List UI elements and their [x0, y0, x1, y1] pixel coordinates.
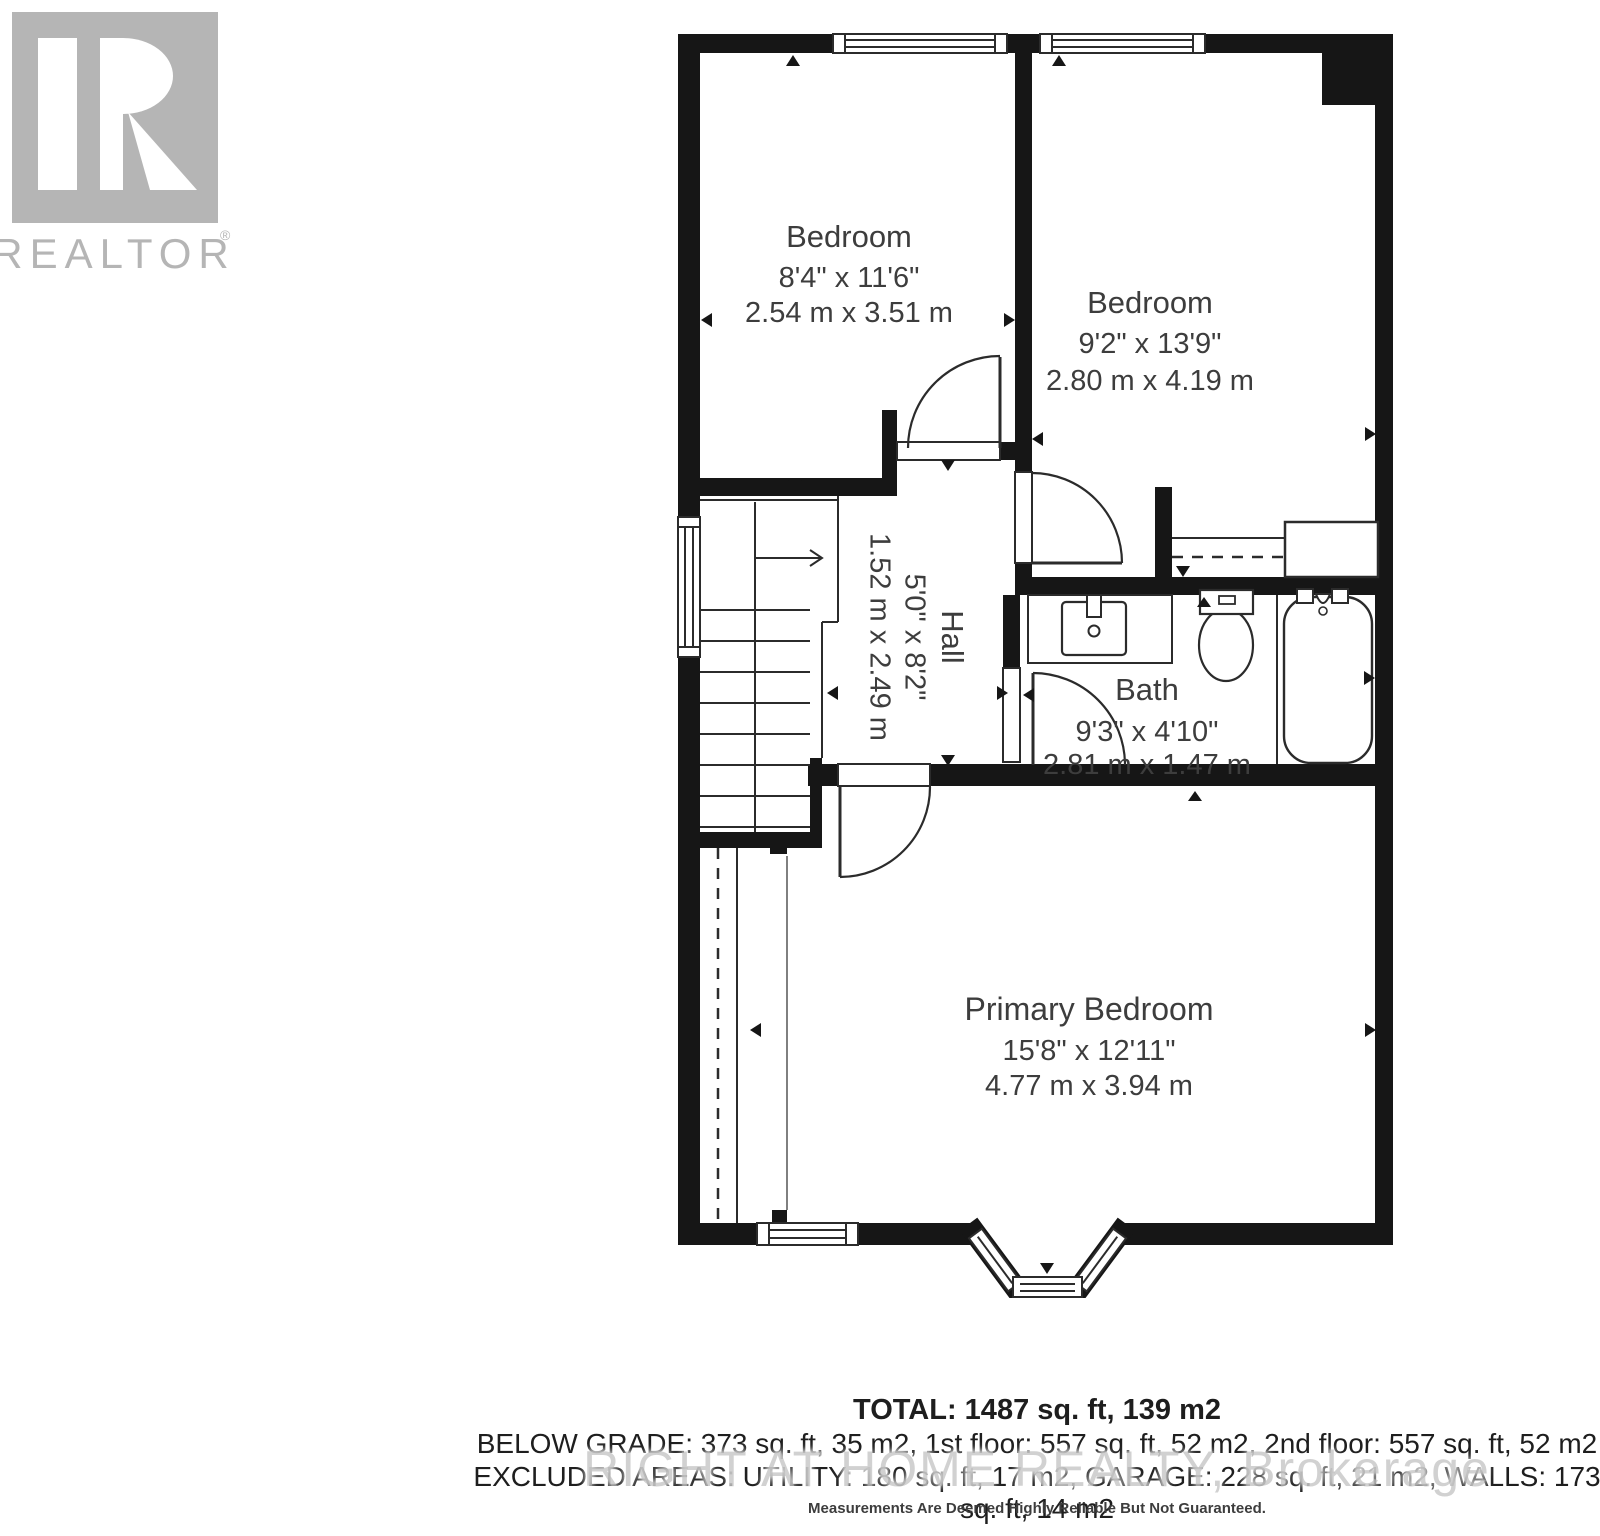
stairs-up-arrow-icon: [755, 550, 822, 610]
room-dim-imperial: 9'2" x 13'9": [1079, 328, 1222, 360]
room-dim-metric: 2.54 m x 3.51 m: [745, 297, 953, 329]
room-name: Bedroom: [1087, 285, 1213, 320]
bedroom2-label: Bedroom 9'2" x 13'9" 2.80 m x 4.19 m: [1046, 285, 1254, 397]
room-name: Hall: [935, 610, 970, 663]
sink-vanity-icon: [1028, 595, 1172, 663]
room-dim-imperial: 5'0" x 8'2": [898, 574, 930, 701]
room-name: Bedroom: [786, 219, 912, 254]
stairwell-window: [678, 517, 700, 657]
total-area-text: TOTAL: 1487 sq. ft, 139 m2: [472, 1394, 1600, 1427]
bay-window: [969, 1229, 1126, 1297]
room-name: Bath: [1115, 672, 1179, 707]
bathtub-icon: [1284, 589, 1372, 763]
ceiling-break-lines: [718, 848, 787, 1223]
brokerage-watermark: RIGHT AT HOME REALTY, Brokerage: [472, 1440, 1600, 1498]
bedroom2-closet: [1172, 522, 1378, 577]
primary-bedroom-label: Primary Bedroom 15'8" x 12'11" 4.77 m x …: [965, 991, 1214, 1102]
room-dim-metric: 1.52 m x 2.49 m: [863, 533, 895, 741]
floorplan-page: REALTOR ®: [0, 0, 1600, 1536]
hall-label: Hall 5'0" x 8'2" 1.52 m x 2.49 m: [863, 533, 969, 741]
bedroom1-label: Bedroom 8'4" x 11'6" 2.54 m x 3.51 m: [745, 219, 953, 329]
room-name: Primary Bedroom: [965, 991, 1214, 1027]
primary-bedroom-window: [757, 1223, 858, 1245]
room-dim-metric: 2.81 m x 1.47 m: [1043, 749, 1251, 781]
bedroom2-door: [1015, 472, 1122, 563]
bedroom1-door: [897, 356, 1000, 460]
floorplan-drawing: REALTOR ®: [0, 0, 1600, 1536]
bedroom2-window: [1040, 34, 1205, 53]
room-dim-imperial: 9'3" x 4'10": [1076, 716, 1219, 748]
bath-label: Bath 9'3" x 4'10" 2.81 m x 1.47 m: [1043, 672, 1251, 781]
room-dim-imperial: 8'4" x 11'6": [779, 262, 920, 294]
primary-bedroom-door: [838, 764, 930, 877]
disclaimer-text: Measurements Are Deemed Highly Reliable …: [472, 1500, 1600, 1517]
room-dim-metric: 4.77 m x 3.94 m: [985, 1070, 1193, 1102]
bedroom1-window: [833, 34, 1007, 53]
registered-trademark: ®: [220, 227, 231, 243]
room-dim-imperial: 15'8" x 12'11": [1002, 1035, 1175, 1067]
room-dim-metric: 2.80 m x 4.19 m: [1046, 365, 1254, 397]
realtor-logo-text: REALTOR: [0, 230, 236, 277]
realtor-logo-icon: REALTOR ®: [0, 12, 236, 277]
